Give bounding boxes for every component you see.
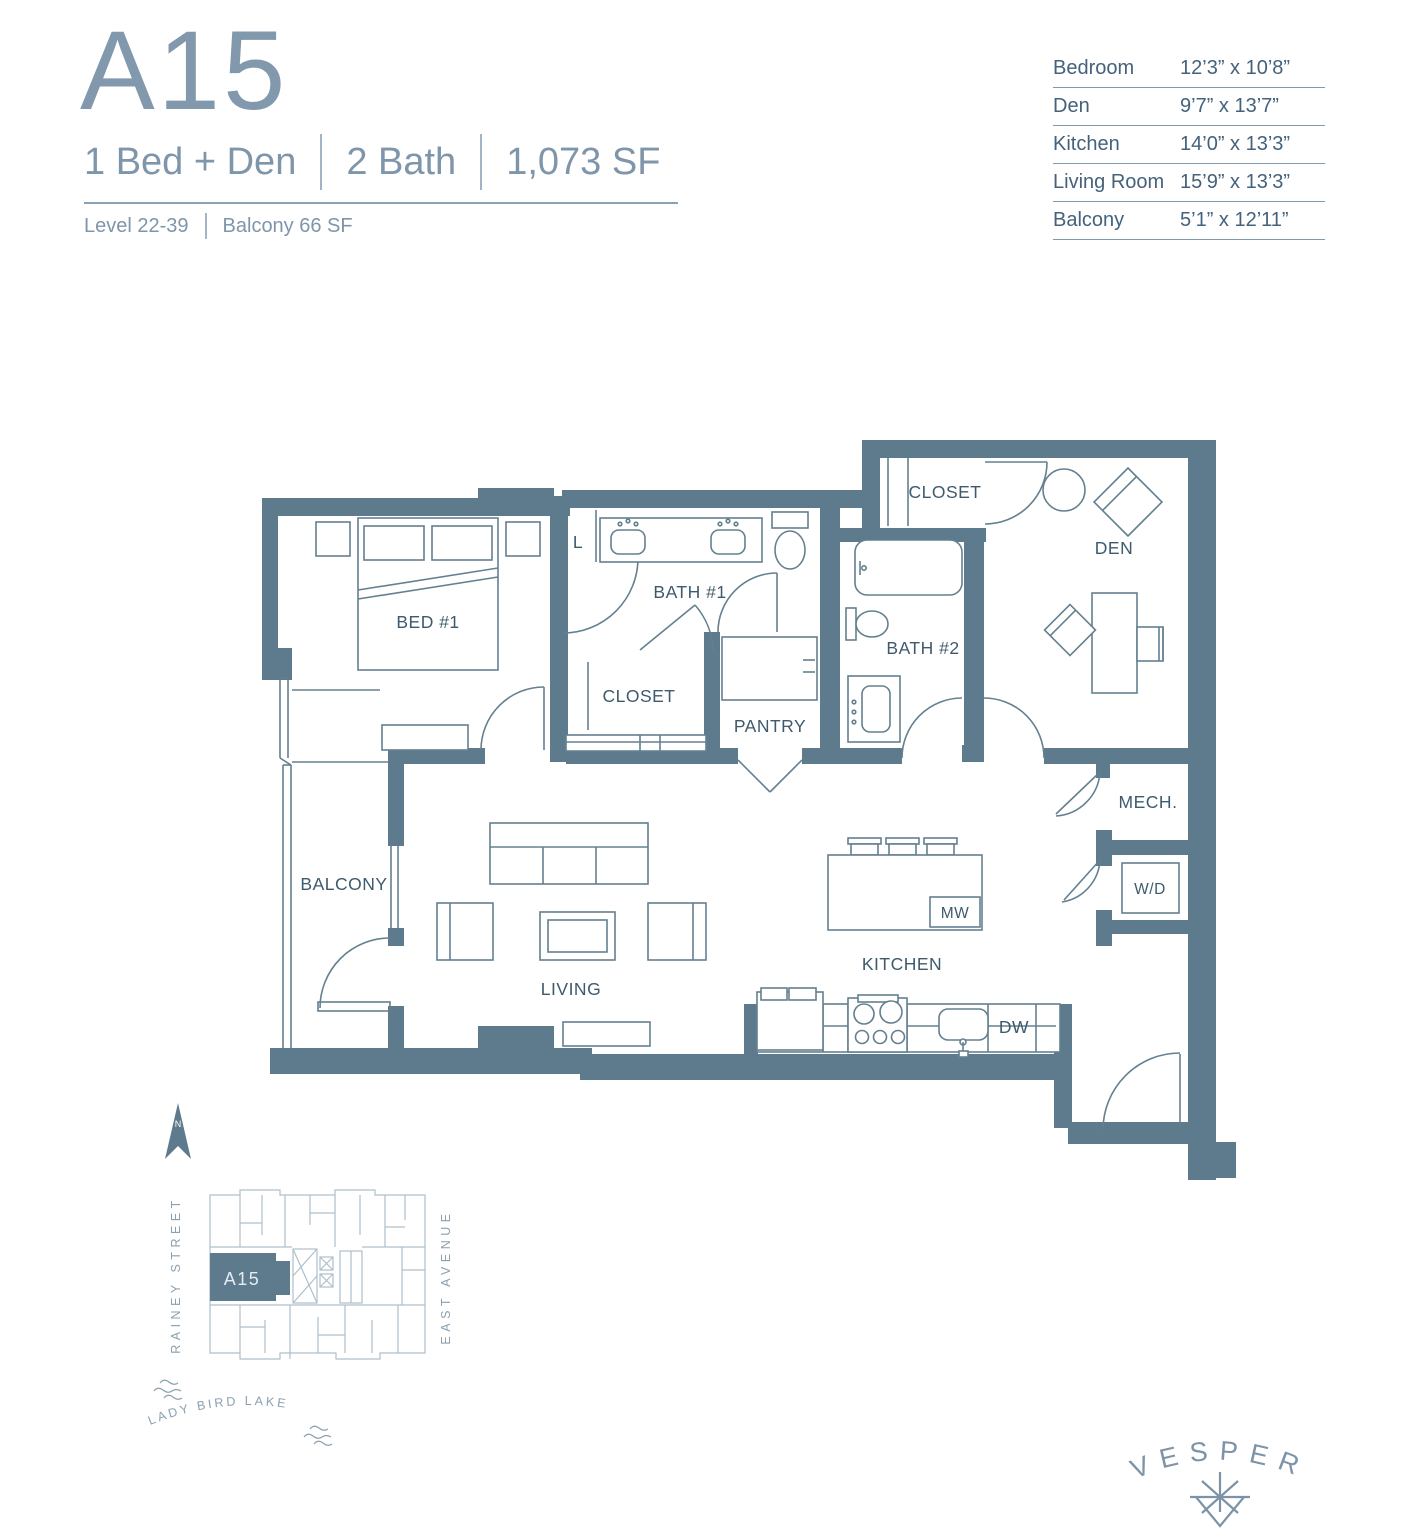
floor-plan: BED #1 L BATH #1 CLOSET PANTRY BATH #2 C… [250, 420, 1250, 1210]
lake-label: LADY BIRD LAKE [146, 1394, 289, 1428]
label-dw: DW [999, 1017, 1029, 1037]
label-closet1: CLOSET [602, 686, 675, 706]
closet2-shelves [888, 458, 908, 526]
dim-room: Balcony [1053, 209, 1180, 232]
keyplan-unit-label: A15 [224, 1269, 261, 1289]
floorplan-sheet: A15 1 Bed + Den 2 Bath 1,073 SF Level 22… [0, 0, 1401, 1536]
label-bed1: BED #1 [396, 612, 459, 632]
table-row: Balcony 5’1” x 12’11” [1053, 202, 1325, 240]
label-mech: MECH. [1119, 792, 1178, 812]
table-row: Bedroom 12’3” x 10’8” [1053, 50, 1325, 88]
spec-area: 1,073 SF [506, 141, 660, 184]
header-rule [84, 202, 678, 204]
unit-meta: Level 22-39 Balcony 66 SF [84, 213, 353, 239]
label-kitchen: KITCHEN [862, 954, 942, 974]
label-balcony: BALCONY [300, 874, 387, 894]
table-row: Den 9’7” x 13’7” [1053, 88, 1325, 126]
dim-size: 9’7” x 13’7” [1180, 95, 1279, 118]
spec-baths: 2 Bath [346, 141, 456, 184]
spec-divider [320, 134, 322, 190]
dim-size: 14’0” x 13’3” [1180, 133, 1290, 156]
key-plan: N RAINEY STREET EAST AVENUE [140, 1095, 480, 1465]
north-arrow-icon: N [165, 1103, 191, 1159]
label-den: DEN [1095, 538, 1133, 558]
dim-room: Bedroom [1053, 57, 1180, 80]
table-row: Living Room 15’9” x 13’3” [1053, 164, 1325, 202]
dim-room: Living Room [1053, 171, 1180, 194]
pantry-shelves [722, 637, 817, 700]
label-bath1: BATH #1 [653, 582, 726, 602]
bath1-fixtures [596, 510, 808, 569]
compass-star-icon [1190, 1472, 1250, 1526]
keyplan-unit-a15: A15 [210, 1253, 290, 1301]
dim-room: Den [1053, 95, 1180, 118]
dim-room: Kitchen [1053, 133, 1180, 156]
label-pantry: PANTRY [734, 716, 806, 736]
closet1-shelves [566, 662, 706, 751]
table-row: Kitchen 14’0” x 13’3” [1053, 126, 1325, 164]
unit-specs: 1 Bed + Den 2 Bath 1,073 SF [84, 134, 660, 190]
spec-beds: 1 Bed + Den [84, 141, 296, 184]
dim-size: 12’3” x 10’8” [1180, 57, 1290, 80]
street-label-rainey: RAINEY STREET [169, 1196, 183, 1354]
north-label: N [175, 1119, 182, 1129]
bed-furniture [316, 518, 540, 750]
label-mw: MW [941, 905, 970, 922]
den-furniture [1043, 468, 1163, 693]
living-furniture [437, 823, 706, 1046]
brand-logo: VESPER [1080, 1398, 1360, 1536]
label-living: LIVING [541, 979, 601, 999]
meta-level: Level 22-39 [84, 215, 189, 238]
label-wd: W/D [1134, 881, 1166, 898]
meta-balcony: Balcony 66 SF [223, 215, 353, 238]
dim-size: 15’9” x 13’3” [1180, 171, 1290, 194]
label-closet2: CLOSET [908, 482, 981, 502]
street-label-east: EAST AVENUE [439, 1209, 453, 1344]
meta-divider [205, 213, 207, 239]
label-linen: L [573, 532, 583, 552]
spec-divider [480, 134, 482, 190]
dimensions-table: Bedroom 12’3” x 10’8” Den 9’7” x 13’7” K… [1053, 50, 1325, 240]
unit-title: A15 [80, 6, 288, 135]
dim-size: 5’1” x 12’11” [1180, 209, 1289, 232]
label-bath2: BATH #2 [886, 638, 959, 658]
